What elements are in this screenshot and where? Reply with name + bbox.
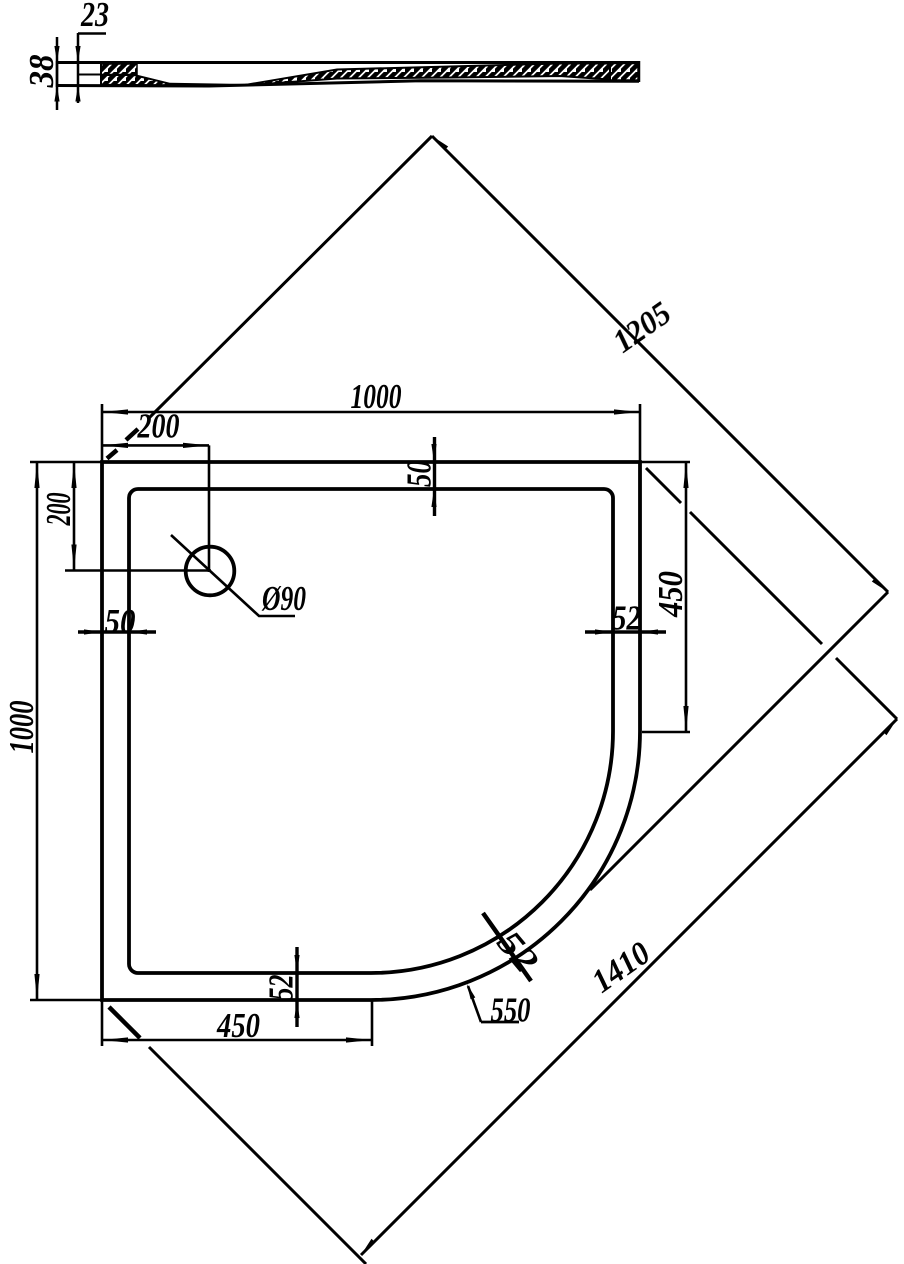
- svg-text:200: 200: [39, 493, 78, 527]
- svg-text:38: 38: [22, 55, 61, 89]
- svg-text:200: 200: [137, 407, 180, 446]
- svg-text:550: 550: [491, 991, 531, 1030]
- svg-text:50: 50: [400, 460, 439, 487]
- svg-text:23: 23: [80, 0, 109, 34]
- svg-text:52: 52: [262, 975, 301, 1001]
- svg-text:450: 450: [651, 571, 690, 618]
- svg-text:1000: 1000: [2, 701, 41, 754]
- svg-text:52: 52: [612, 599, 641, 638]
- svg-text:Ø90: Ø90: [261, 579, 306, 618]
- svg-text:1205: 1205: [607, 295, 678, 360]
- svg-text:450: 450: [216, 1006, 260, 1045]
- svg-text:50: 50: [105, 602, 136, 641]
- svg-text:1410: 1410: [586, 935, 657, 1000]
- svg-text:1000: 1000: [351, 377, 402, 416]
